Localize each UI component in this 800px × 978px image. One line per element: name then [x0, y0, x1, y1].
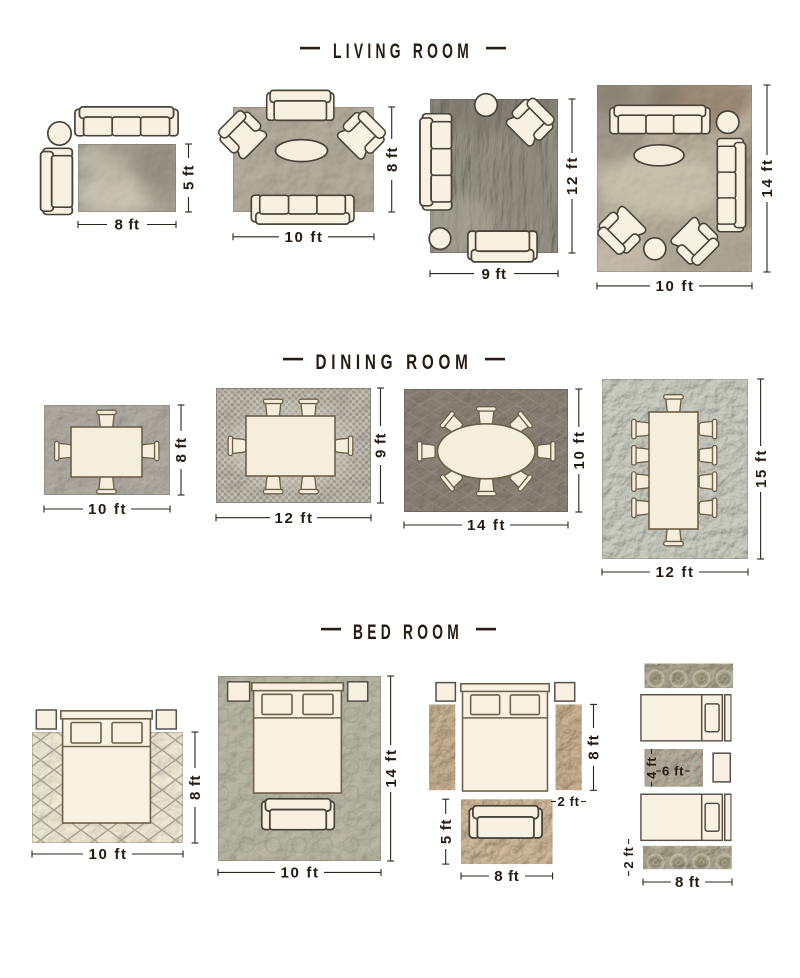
- svg-text:5 ft: 5 ft: [181, 165, 198, 190]
- svg-text:8 ft: 8 ft: [494, 868, 519, 885]
- svg-text:DINING ROOM: DINING ROOM: [316, 351, 473, 374]
- svg-text:9 ft: 9 ft: [373, 433, 390, 458]
- svg-text:9 ft: 9 ft: [482, 266, 507, 283]
- svg-text:8 ft: 8 ft: [115, 217, 140, 234]
- svg-text:2 ft: 2 ft: [621, 846, 636, 868]
- svg-text:8 ft: 8 ft: [675, 874, 700, 891]
- svg-text:8 ft: 8 ft: [384, 147, 401, 172]
- svg-text:BED ROOM: BED ROOM: [353, 621, 463, 644]
- svg-text:LIVING ROOM: LIVING ROOM: [333, 40, 473, 63]
- svg-text:8 ft: 8 ft: [173, 438, 190, 463]
- svg-text:4 ft: 4 ft: [644, 757, 659, 779]
- svg-text:8 ft: 8 ft: [187, 775, 204, 800]
- svg-text:6 ft: 6 ft: [662, 764, 684, 779]
- svg-text:5 ft: 5 ft: [438, 819, 455, 844]
- svg-text:2 ft: 2 ft: [558, 794, 580, 809]
- svg-text:8 ft: 8 ft: [586, 735, 603, 760]
